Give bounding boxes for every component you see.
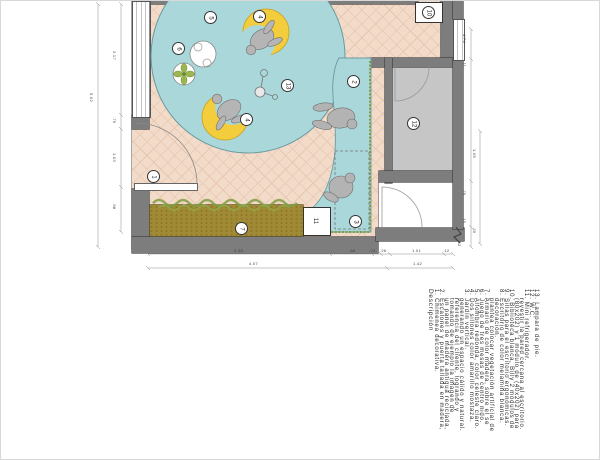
- badge-10: 10: [422, 6, 435, 19]
- badge-3: 3: [349, 215, 362, 228]
- dim-right-11: .11: [462, 61, 467, 67]
- dim-bottom-142: 1.42: [413, 261, 422, 266]
- dim-bottom-338: 3.38: [234, 248, 243, 253]
- badge-6: 6: [172, 42, 185, 55]
- dim-right-79: .79: [462, 189, 467, 195]
- dim-seg-left-1: .79: [112, 117, 117, 123]
- dim-seg-left-2: .98: [112, 203, 117, 209]
- dim-right-32: .32: [457, 240, 462, 246]
- badge-4a: 4: [253, 10, 266, 23]
- dim-right-10: .10: [462, 217, 467, 223]
- dim-bottom-101: 1.01: [412, 248, 421, 253]
- badge-4b: 4: [240, 113, 253, 126]
- door-arc-wc: [395, 67, 429, 101]
- door-arc-entry: [382, 187, 422, 227]
- badge-13: 13: [281, 79, 294, 92]
- dim-window-left: 2.17: [112, 51, 117, 60]
- dim-door-left: 1.03: [112, 153, 117, 162]
- dim-right-105: 1.05: [472, 149, 477, 158]
- dim-right-20: .20: [472, 227, 477, 233]
- badge-12: 12: [407, 117, 420, 130]
- badge-7: 7: [235, 222, 248, 235]
- badge-2: 2: [347, 75, 360, 88]
- dim-total-left: 5.92: [89, 93, 94, 102]
- drawing-sheet: 1 2 3 4 4 5 6 7 10 11 12 13 5.92 2.17 .7…: [0, 0, 600, 460]
- dim-bottom-12: .12: [443, 248, 449, 253]
- badge-5: 5: [204, 11, 217, 24]
- badge-11: 11: [310, 215, 321, 226]
- badge-1: 1: [147, 170, 160, 183]
- dim-bottom-407: 4.07: [249, 261, 258, 266]
- dim-bottom-23: .23: [369, 248, 375, 253]
- legend-line-13: 13. Lampara de pie.: [533, 289, 538, 358]
- dim-bottom-26: .26: [380, 248, 386, 253]
- dim-right-474: 4.74: [462, 34, 467, 43]
- dim-bottom-88: .88: [349, 248, 355, 253]
